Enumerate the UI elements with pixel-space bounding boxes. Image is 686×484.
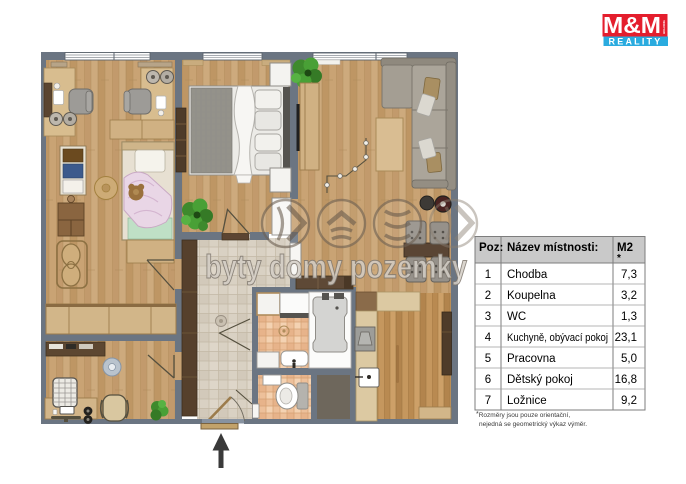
svg-text:WC: WC	[507, 311, 526, 323]
svg-text:HOLDING: HOLDING	[662, 20, 666, 34]
svg-text:4: 4	[485, 332, 492, 344]
svg-text:Dětský pokoj: Dětský pokoj	[507, 374, 573, 386]
svg-text:byty domy pozemky: byty domy pozemky	[205, 248, 468, 285]
svg-text:7,3: 7,3	[621, 269, 637, 281]
svg-text:Pracovna: Pracovna	[507, 353, 556, 365]
svg-text:3: 3	[485, 311, 491, 323]
svg-text:3,2: 3,2	[621, 290, 637, 302]
svg-text:1: 1	[485, 269, 491, 281]
svg-text:Poz:: Poz:	[479, 242, 503, 254]
svg-text:Koupelna: Koupelna	[507, 290, 556, 302]
svg-text:*: *	[617, 253, 621, 264]
svg-text:*Rozměry jsou pouze orientační: *Rozměry jsou pouze orientační,	[476, 411, 570, 419]
svg-text:9,2: 9,2	[621, 395, 637, 407]
svg-text:nejedná se geometrický výkaz v: nejedná se geometrický výkaz výměr.	[479, 421, 587, 428]
svg-text:M&M: M&M	[603, 12, 661, 38]
svg-text:Název místnosti:: Název místnosti:	[507, 242, 598, 254]
svg-text:7: 7	[485, 395, 491, 407]
svg-text:REALITY: REALITY	[609, 37, 663, 47]
svg-text:Chodba: Chodba	[507, 269, 548, 281]
svg-text:1,3: 1,3	[621, 311, 637, 323]
svg-text:5: 5	[485, 353, 491, 365]
svg-text:Ložnice: Ložnice	[507, 395, 547, 407]
svg-text:2: 2	[485, 290, 491, 302]
svg-text:16,8: 16,8	[615, 374, 637, 386]
svg-text:23,1: 23,1	[615, 332, 637, 344]
svg-text:5,0: 5,0	[621, 353, 637, 365]
svg-text:Kuchyně, obývací pokoj: Kuchyně, obývací pokoj	[507, 332, 608, 344]
svg-text:6: 6	[485, 374, 491, 386]
